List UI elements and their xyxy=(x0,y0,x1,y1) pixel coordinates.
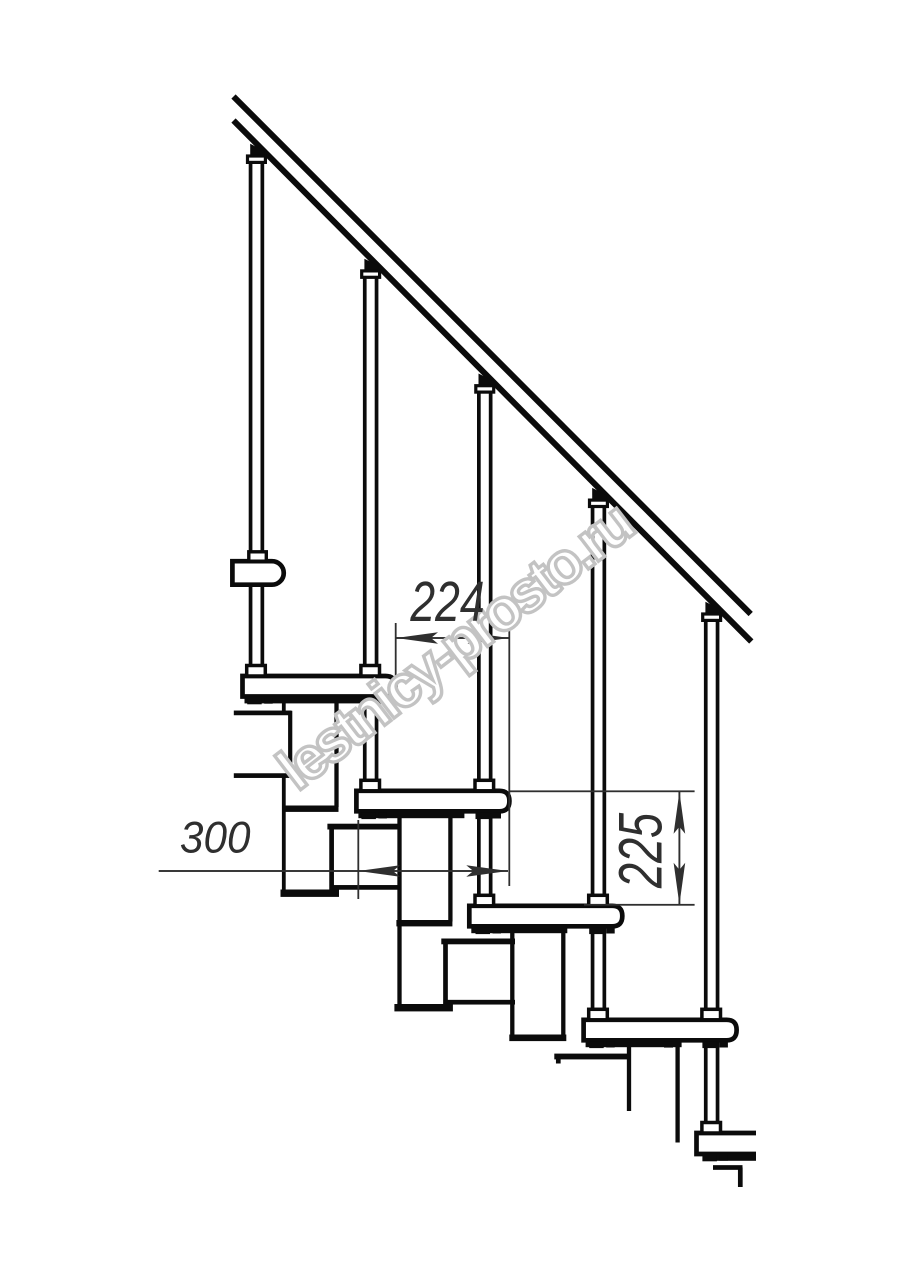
svg-text:225: 225 xyxy=(607,813,675,889)
svg-text:224: 224 xyxy=(410,570,485,634)
svg-text:300: 300 xyxy=(180,814,251,863)
